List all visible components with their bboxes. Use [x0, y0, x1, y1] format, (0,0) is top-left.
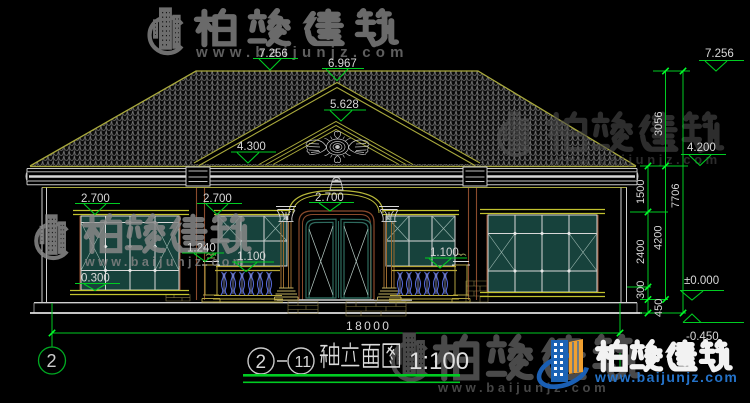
svg-text:7.256: 7.256 [705, 48, 734, 60]
svg-text:1.100: 1.100 [430, 247, 459, 259]
svg-text:4200: 4200 [653, 226, 665, 250]
svg-text:www.baijunjz.com: www.baijunjz.com [195, 44, 409, 61]
svg-text:2: 2 [47, 351, 57, 371]
svg-text:1.100: 1.100 [237, 251, 266, 263]
svg-text:5.628: 5.628 [330, 99, 359, 111]
svg-text:4.200: 4.200 [687, 142, 716, 154]
svg-text:11: 11 [295, 354, 312, 371]
svg-text:7706: 7706 [670, 184, 682, 208]
svg-text:450: 450 [653, 299, 665, 317]
svg-text:1500: 1500 [635, 180, 647, 204]
svg-text:300: 300 [635, 281, 647, 299]
svg-text:±0.000: ±0.000 [684, 275, 719, 287]
svg-text:www.baijunjz.com: www.baijunjz.com [594, 369, 738, 385]
svg-text:-0.450: -0.450 [686, 331, 719, 343]
svg-text:18000: 18000 [346, 319, 391, 333]
svg-text:2: 2 [256, 352, 267, 373]
svg-text:2400: 2400 [635, 240, 647, 264]
svg-text:1:100: 1:100 [409, 348, 469, 375]
svg-text:4.300: 4.300 [237, 141, 266, 153]
svg-text:www.baijunjz.com: www.baijunjz.com [437, 380, 609, 395]
svg-text:www.baijunjz.com: www.baijunjz.com [84, 255, 247, 269]
svg-text:3056: 3056 [653, 112, 665, 136]
svg-text:0.300: 0.300 [81, 273, 110, 285]
